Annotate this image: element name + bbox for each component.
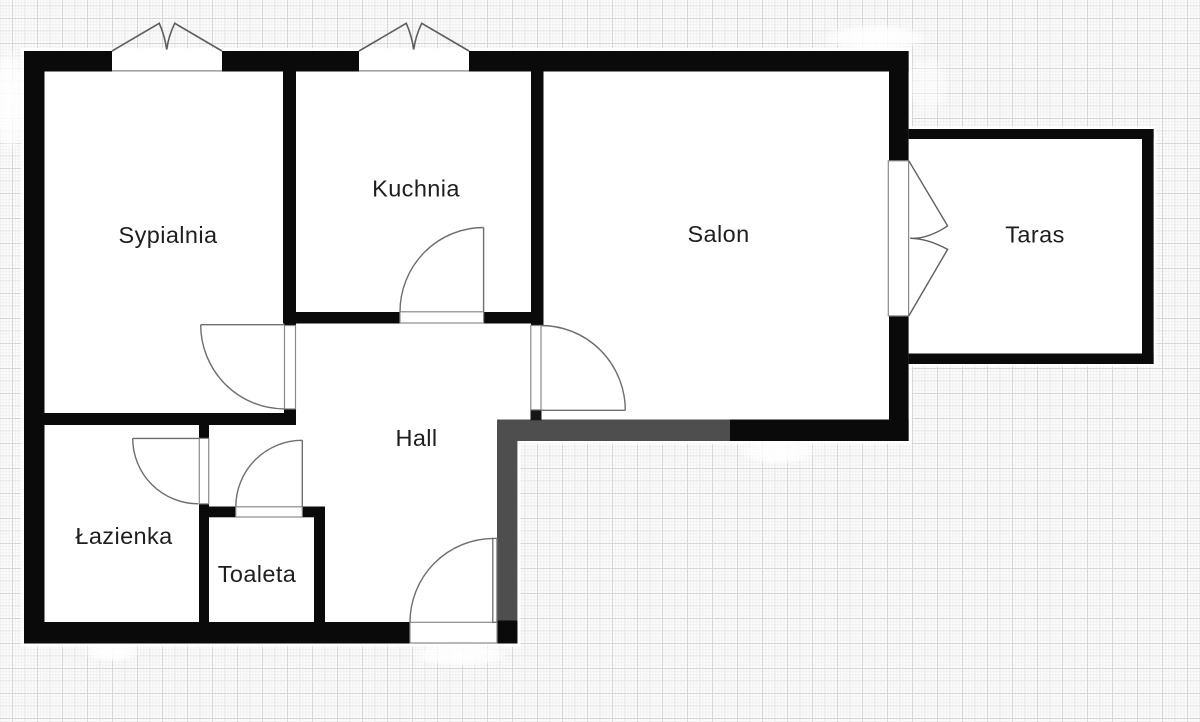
svg-text:Salon: Salon [687,221,749,247]
svg-text:Toaleta: Toaleta [218,561,297,587]
svg-text:Hall: Hall [395,425,437,451]
svg-text:Kuchnia: Kuchnia [372,176,460,202]
svg-text:Sypialnia: Sypialnia [119,222,218,248]
svg-text:Taras: Taras [1005,222,1064,248]
svg-text:Łazienka: Łazienka [75,523,173,549]
